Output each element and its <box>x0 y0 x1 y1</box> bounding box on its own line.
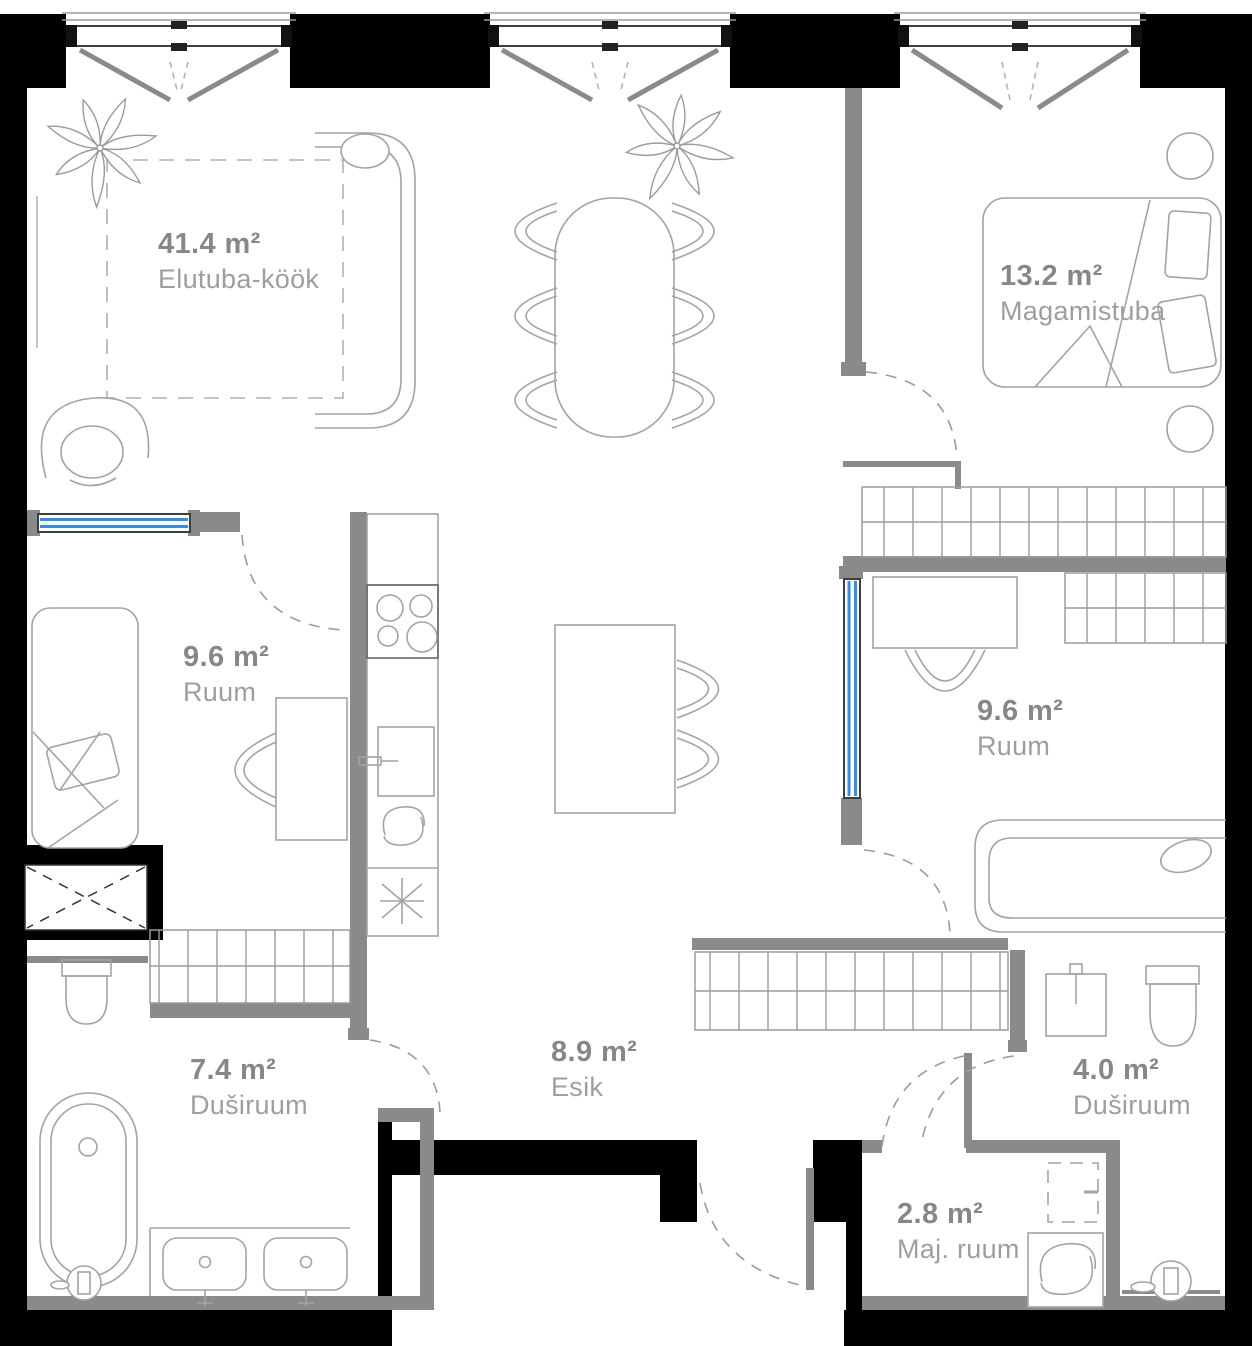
boiler-dashed <box>1048 1163 1098 1222</box>
room-area: 41.4 m² <box>158 228 319 261</box>
room-area: 7.4 m² <box>190 1054 308 1087</box>
chair <box>677 730 719 788</box>
room-label-ruum-left: 9.6 m² Ruum <box>183 641 269 707</box>
armchair <box>41 398 148 486</box>
room-label-dusiruum-right: 4.0 m² Duširuum <box>1073 1054 1191 1120</box>
esik-furniture <box>555 625 719 813</box>
desk-chair <box>905 650 985 691</box>
sofa-small <box>975 820 1226 932</box>
door-arc-entry <box>700 1183 804 1286</box>
shower <box>1122 1261 1220 1301</box>
side-windows <box>38 514 860 798</box>
balcony-door-right <box>894 13 1146 108</box>
utility-room <box>1028 1163 1103 1307</box>
room-area: 4.0 m² <box>1073 1054 1191 1087</box>
room-name: Duširuum <box>190 1090 308 1120</box>
nightstand <box>1167 133 1213 179</box>
room-area: 8.9 m² <box>551 1036 637 1069</box>
vanity-double-sink <box>150 1228 350 1306</box>
room-name: Duširuum <box>1073 1090 1191 1120</box>
sofa <box>315 133 415 428</box>
door-arc-ruum-left <box>242 535 344 630</box>
floorplan-page: 41.4 m² Elutuba-köök 13.2 m² Magamistuba… <box>0 0 1252 1346</box>
dining-table-set <box>515 198 714 437</box>
living-room-furniture <box>37 79 748 485</box>
room-area: 9.6 m² <box>977 695 1063 728</box>
majruum-door-leaf <box>964 1053 972 1148</box>
island-table <box>555 625 675 813</box>
room-label-dusiruum-left: 7.4 m² Duširuum <box>190 1054 308 1120</box>
room-label-maj-ruum: 2.8 m² Maj. ruum <box>897 1198 1020 1264</box>
wardrobe-bedroom <box>862 487 1226 557</box>
room-area: 13.2 m² <box>1000 260 1165 293</box>
balcony-door-left <box>62 13 296 100</box>
room-label-esik: 8.9 m² Esik <box>551 1036 637 1102</box>
nightstand <box>1167 406 1213 452</box>
room-label-magamistuba: 13.2 m² Magamistuba <box>1000 260 1165 326</box>
washing-machine <box>1028 1233 1103 1307</box>
toilet <box>62 960 111 1024</box>
wardrobe-ruum-right <box>1065 573 1226 643</box>
balcony-window-assemblies <box>62 13 1146 108</box>
chair <box>677 660 719 718</box>
room-label-elutuba-kook: 41.4 m² Elutuba-köök <box>158 228 319 294</box>
balcony-door-center <box>484 13 736 100</box>
kitchen-unit <box>359 514 438 936</box>
plant-icon <box>48 98 156 207</box>
entry-door-leaf <box>806 1168 814 1290</box>
wardrobe-esik <box>695 952 1008 1030</box>
room-name: Magamistuba <box>1000 296 1165 326</box>
door-arc-magamistuba <box>866 372 957 458</box>
window-right-vertical <box>844 579 860 798</box>
desk <box>873 577 1017 648</box>
single-bed <box>32 608 138 848</box>
door-arc-dusiruum-left <box>370 1040 440 1112</box>
room-area: 2.8 m² <box>897 1198 1020 1231</box>
room-area: 9.6 m² <box>183 641 269 674</box>
washbasin <box>1046 964 1106 1036</box>
desk <box>276 698 347 840</box>
bathtub <box>40 1093 137 1300</box>
room-name: Elutuba-köök <box>158 264 319 294</box>
window-left-horizontal <box>38 514 190 532</box>
wardrobe-ruum-left <box>150 930 350 1003</box>
ventilation-shaft <box>25 865 147 930</box>
desk-chair <box>235 733 276 807</box>
room-name: Maj. ruum <box>897 1234 1020 1264</box>
room-label-ruum-right: 9.6 m² Ruum <box>977 695 1063 761</box>
room-name: Esik <box>551 1072 637 1102</box>
door-arc-ruum-right <box>864 850 950 934</box>
toilet <box>1146 966 1199 1046</box>
room-name: Ruum <box>977 731 1063 761</box>
room-name: Ruum <box>183 677 269 707</box>
